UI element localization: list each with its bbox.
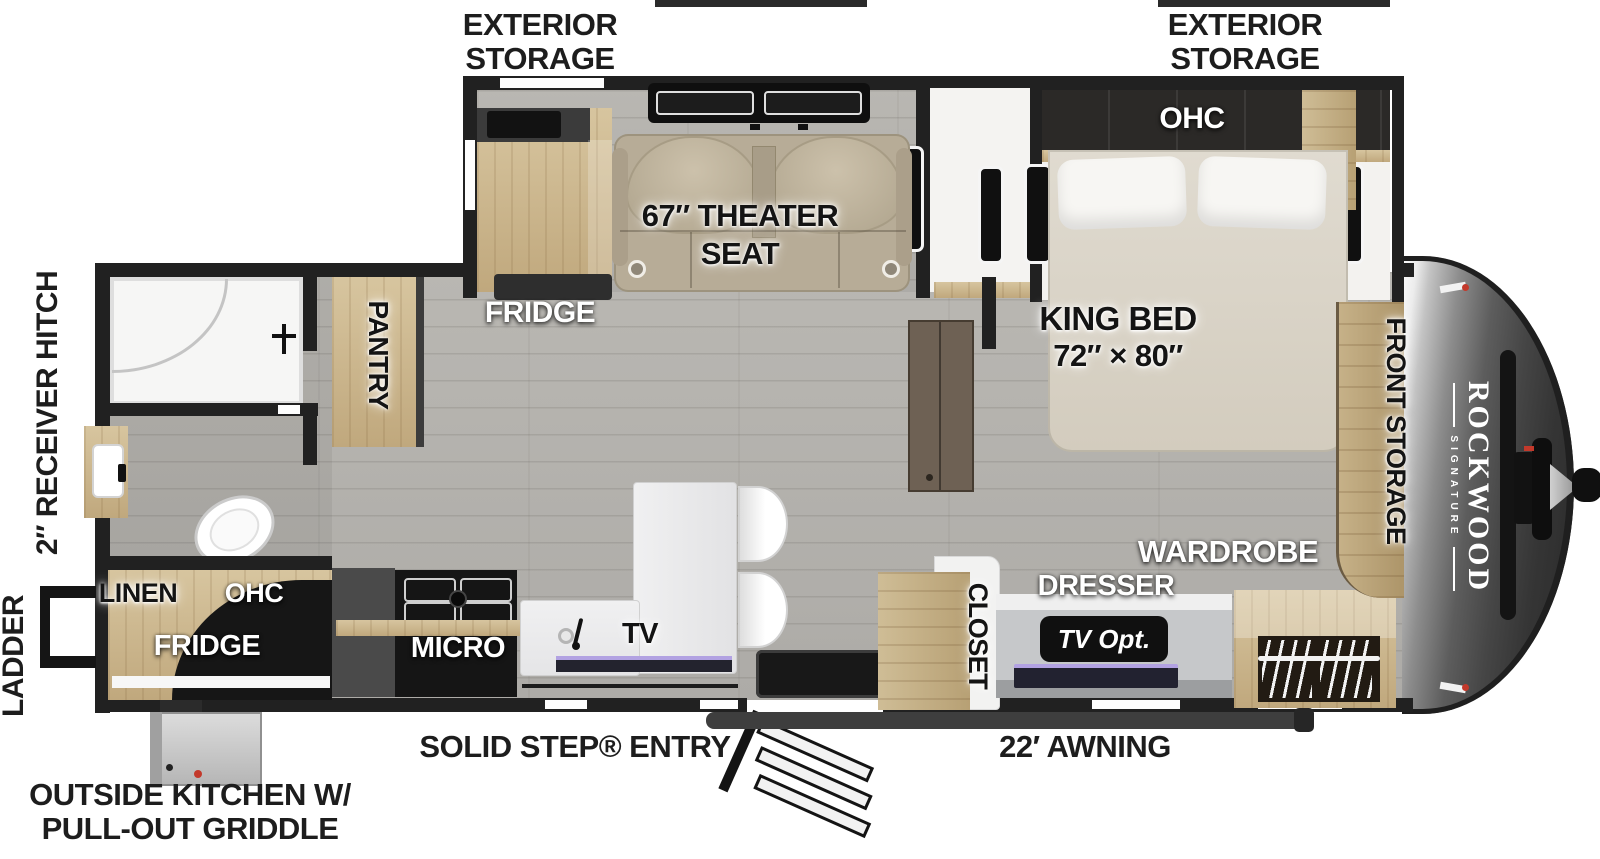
bathroom-kitchen-divider-wall — [95, 556, 332, 570]
linen-label: LINEN — [86, 578, 190, 609]
ladder-icon-arm — [40, 656, 96, 668]
pillow — [1057, 156, 1187, 230]
tv-opt-badge: TV Opt. — [1040, 616, 1168, 662]
brand-series: SIGNATURE — [1449, 435, 1460, 538]
brand-name: ROCKWOOD — [1462, 381, 1496, 593]
awning-bar — [706, 712, 1310, 729]
closet-cabinet — [878, 572, 970, 710]
slide-topper-bar-left — [655, 0, 867, 7]
bottom-wall-window — [700, 700, 738, 709]
cooktop-burner — [449, 590, 467, 608]
outside-fridge-label: FRIDGE — [142, 630, 272, 663]
cap-handle-bottom-dot — [1462, 684, 1469, 691]
passthrough-top-wall — [930, 76, 1030, 88]
bedroom-slide-top-wall — [1030, 76, 1404, 90]
pillow — [1197, 156, 1327, 230]
door-seam — [939, 322, 941, 490]
griddle-knob — [166, 764, 173, 771]
receiver-hitch-label: 2″ RECEIVER HITCH — [31, 258, 65, 568]
awning-label: 22′ AWNING — [965, 730, 1205, 764]
hitch-coupler — [1532, 438, 1552, 540]
passthrough-window — [978, 166, 1004, 264]
dresser-label: DRESSER — [1016, 570, 1196, 603]
theater-seat-arm — [896, 148, 912, 266]
wardrobe-rod — [1258, 656, 1380, 661]
tv-opt-label: TV Opt. — [1058, 624, 1150, 655]
exterior-storage-label-left: EXTERIOR STORAGE — [430, 8, 650, 76]
label-line: STORAGE — [1135, 42, 1355, 76]
slide-topper-bar-right — [1158, 0, 1390, 7]
theater-seat-label: 67″ THEATER — [590, 198, 890, 234]
wardrobe-hangers — [1262, 640, 1312, 698]
window-latch — [798, 124, 808, 130]
wardrobe-label: WARDROBE — [1118, 534, 1338, 570]
pullout-griddle — [150, 712, 262, 786]
ladder-icon-arm — [40, 586, 96, 598]
closet-label: CLOSET — [960, 551, 996, 721]
kitchen-faucet-base — [572, 642, 580, 650]
outside-kitchen-rail — [112, 676, 330, 688]
wardrobe-top — [1234, 590, 1396, 638]
bedroom-sliding-door — [908, 320, 974, 492]
theater-top-window-pane — [656, 91, 754, 115]
bedroom-slide-right-wall — [1392, 76, 1404, 302]
window-latch — [750, 124, 760, 130]
theater-seat-label-2: SEAT — [590, 236, 890, 272]
counter-leg-rail — [522, 684, 738, 688]
entry-step-well — [756, 650, 890, 698]
wardrobe-hangers — [1320, 640, 1372, 698]
bottom-wall-window — [1092, 700, 1180, 709]
hitch-jack-handle — [1572, 468, 1600, 502]
theater-left-wall-window — [465, 140, 475, 210]
label-line: OUTSIDE KITCHEN W/ — [20, 778, 360, 812]
brand-rule — [1453, 547, 1455, 591]
hitch-coupler-inner — [1514, 452, 1534, 524]
top-wall — [95, 263, 463, 277]
dresser-tv — [1014, 664, 1178, 688]
label-line: EXTERIOR — [1135, 8, 1355, 42]
label-line: STORAGE — [430, 42, 650, 76]
bedroom-partition-wall — [982, 277, 996, 349]
exterior-storage-label-right: EXTERIOR STORAGE — [1135, 8, 1355, 76]
shower-door-gap — [278, 405, 300, 414]
brand-sub-row: SIGNATURE — [1449, 383, 1460, 590]
ladder-label: LADDER — [0, 581, 30, 731]
shower-head-icon — [282, 324, 286, 354]
label-line: PULL-OUT GRIDDLE — [20, 812, 360, 846]
outside-ohc-label: OHC — [210, 578, 298, 609]
outside-kitchen-label: OUTSIDE KITCHEN W/ PULL-OUT GRIDDLE — [20, 778, 360, 846]
bottom-wall-window — [545, 700, 587, 709]
theater-top-window-pane — [764, 91, 862, 115]
solid-step-entry-label: SOLID STEP® ENTRY — [395, 730, 755, 764]
brand-rule — [1453, 383, 1455, 427]
bathroom-right-wall-bottom — [303, 413, 317, 465]
theater-top-wall-door — [500, 78, 604, 88]
hitch-red-tick — [1524, 446, 1534, 451]
pantry-side-edge — [416, 277, 424, 447]
fridge-counter-item — [487, 111, 561, 138]
sink-drain — [558, 628, 574, 644]
griddle-side — [150, 712, 162, 786]
awning-end-cap — [1294, 708, 1314, 732]
pantry-label: PANTRY — [359, 255, 397, 455]
fridge-label: FRIDGE — [465, 296, 615, 330]
king-bed-size-label: 72″ × 80″ — [998, 338, 1238, 374]
brand-logo: ROCKWOOD SIGNATURE — [1441, 307, 1503, 667]
door-handle — [926, 474, 933, 481]
tv-screen — [556, 656, 732, 672]
cap-handle-top-dot — [1462, 284, 1469, 291]
floorplan-canvas: EXTERIOR STORAGE EXTERIOR STORAGE ROCKWO… — [0, 0, 1600, 859]
micro-label: MICRO — [395, 632, 521, 665]
sink-faucet-icon — [118, 464, 126, 482]
king-bed-label: KING BED — [998, 300, 1238, 338]
bathroom-right-wall-top — [303, 277, 317, 351]
label-line: EXTERIOR — [430, 8, 650, 42]
front-storage-label: FRONT STORAGE — [1377, 281, 1415, 581]
cooktop-grate — [460, 578, 512, 602]
tv-label: TV — [600, 618, 680, 651]
bedroom-ohc-label: OHC — [1150, 102, 1234, 136]
